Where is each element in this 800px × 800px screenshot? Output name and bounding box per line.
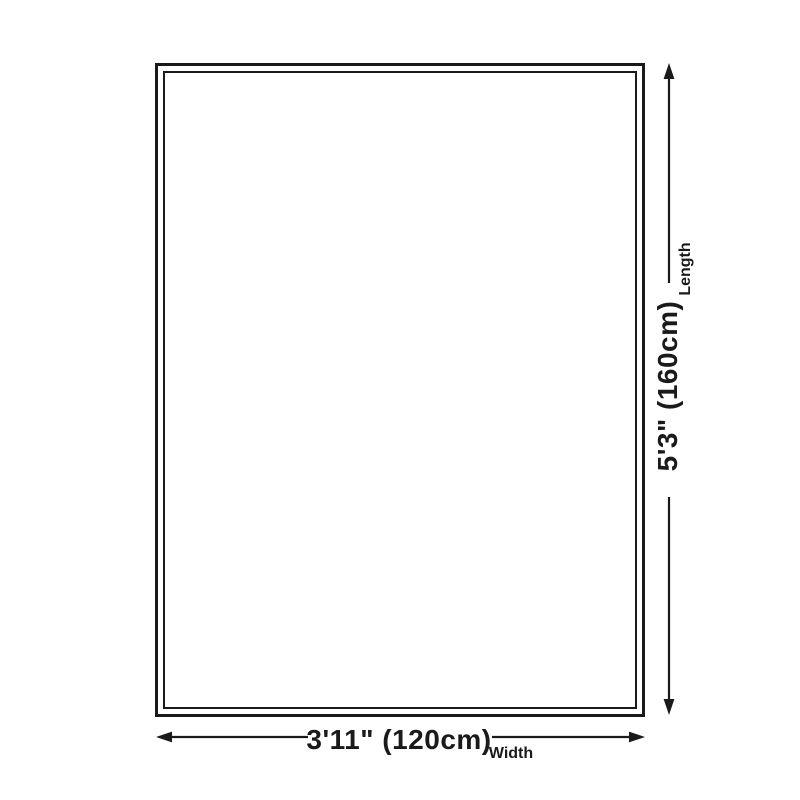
arrow-left-icon: [156, 732, 172, 743]
arrow-up-icon: [664, 63, 675, 79]
arrow-down-icon: [664, 699, 675, 715]
width-label: Width: [489, 745, 533, 763]
rug-dimension-diagram: 5'3" (160cm) Length 3'11" (120cm) Width: [0, 0, 800, 800]
length-value: 5'3" (160cm): [652, 301, 684, 472]
arrow-right-icon: [629, 732, 645, 743]
width-value: 3'11" (120cm): [306, 724, 491, 756]
length-label: Length: [677, 242, 695, 295]
